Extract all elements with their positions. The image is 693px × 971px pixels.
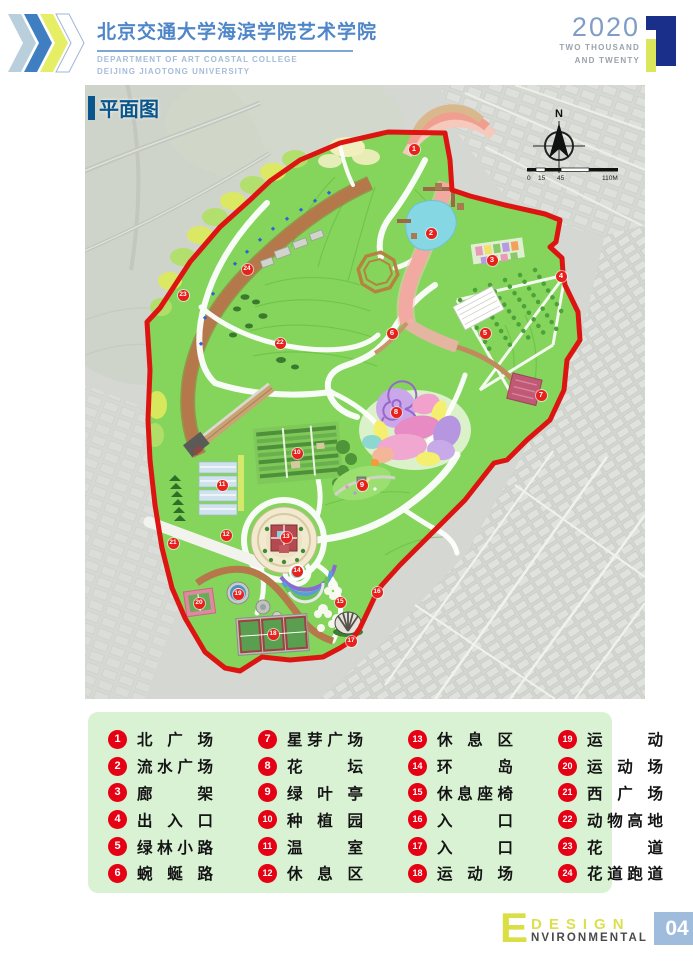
map-marker-22: 22 — [275, 338, 286, 349]
legend-item-17: 17入口 — [408, 833, 558, 860]
legend-item-16: 16入口 — [408, 806, 558, 833]
title-divider — [97, 50, 353, 52]
map-marker-17: 17 — [346, 636, 357, 647]
legend-grid: 1北广场2流水广场3廊架4出入口5绿林小路6蜿蜒路7星芽广场8花坛9绿叶亭10种… — [88, 712, 612, 887]
legend-item-14: 14环岛 — [408, 753, 558, 780]
legend-number-badge: 19 — [558, 730, 577, 749]
map-marker-12: 12 — [221, 530, 232, 541]
scale-tick-15: 15 — [538, 175, 546, 182]
legend-label: 西广场 — [587, 782, 678, 804]
legend-label: 运动 — [587, 728, 693, 750]
legend-label: 花道 — [587, 836, 693, 858]
legend-label: 入口 — [437, 836, 558, 858]
legend-label: 廊架 — [137, 782, 258, 804]
map-marker-15: 15 — [335, 597, 346, 608]
legend-label: 蜿蜒路 — [137, 862, 228, 884]
legend-item-6: 6蜿蜒路 — [108, 860, 258, 887]
legend-item-21: 21西广场 — [558, 780, 693, 807]
legend-number-badge: 1 — [108, 730, 127, 749]
legend-number-badge: 5 — [108, 837, 127, 856]
legend-item-15: 15休息座椅 — [408, 780, 558, 807]
legend-label: 绿叶亭 — [287, 782, 378, 804]
legend-item-24: 24花道跑道 — [558, 860, 693, 887]
scale-tick-0: 0 — [527, 175, 531, 182]
footer: E DESIGN NVIRONMENTAL 04 — [500, 911, 693, 945]
map-marker-11: 11 — [217, 480, 228, 491]
page-title: 北京交通大学海滨学院艺术学院 — [97, 17, 397, 44]
map-marker-21: 21 — [168, 538, 179, 549]
legend-item-12: 12休息区 — [258, 860, 408, 887]
year-block: 2020 TWO THOUSAND AND TWENTY — [520, 14, 640, 66]
legend-number-badge: 8 — [258, 757, 277, 776]
legend-label: 花坛 — [287, 755, 408, 777]
legend-number-badge: 3 — [108, 783, 127, 802]
legend-item-9: 9绿叶亭 — [258, 780, 408, 807]
legend-number-badge: 17 — [408, 837, 427, 856]
legend-label: 流水广场 — [137, 755, 218, 777]
compass-n-label: N — [555, 108, 563, 120]
legend-label: 出入口 — [137, 809, 228, 831]
map-marker-18: 18 — [268, 629, 279, 640]
map-marker-13: 13 — [281, 532, 292, 543]
legend-number-badge: 10 — [258, 810, 277, 829]
year-text: 2020 — [520, 14, 640, 40]
map-marker-9: 9 — [357, 480, 368, 491]
legend-item-10: 10种植园 — [258, 806, 408, 833]
legend-number-badge: 20 — [558, 757, 577, 776]
legend-label: 动物高地 — [587, 809, 668, 831]
legend-number-badge: 14 — [408, 757, 427, 776]
legend-number-badge: 21 — [558, 783, 577, 802]
legend-number-badge: 18 — [408, 864, 427, 883]
legend-label: 星芽广场 — [287, 728, 368, 750]
map-marker-4: 4 — [556, 271, 567, 282]
subtitle-line2: DEIJING JIAOTONG UNIVERSITY — [97, 67, 397, 76]
legend-label: 环岛 — [437, 755, 558, 777]
map-marker-1: 1 — [409, 144, 420, 155]
map-marker-3: 3 — [487, 255, 498, 266]
legend-item-8: 8花坛 — [258, 753, 408, 780]
subtitle-line1: DEPARTMENT OF ART COASTAL COLLEGE — [97, 55, 397, 64]
legend-label: 绿林小路 — [137, 836, 218, 858]
legend-label: 休息区 — [287, 862, 378, 884]
legend-number-badge: 13 — [408, 730, 427, 749]
footer-environmental-text: NVIRONMENTAL — [531, 932, 648, 945]
header-title-block: 北京交通大学海滨学院艺术学院 DEPARTMENT OF ART COASTAL… — [97, 17, 397, 76]
legend-item-7: 7星芽广场 — [258, 726, 408, 753]
map-marker-6: 6 — [387, 328, 398, 339]
legend-number-badge: 22 — [558, 810, 577, 829]
legend-label: 休息座椅 — [437, 782, 518, 804]
map-title: 平面图 — [88, 93, 159, 122]
map-title-text: 平面图 — [99, 93, 159, 122]
map-marker-23: 23 — [178, 290, 189, 301]
site-plan-drawing: N 0 15 45 110M — [85, 85, 645, 699]
footer-e-letter: E — [500, 911, 528, 945]
footer-design-text: DESIGN — [531, 917, 648, 932]
legend-label: 运动场 — [587, 755, 678, 777]
legend-item-20: 20运动场 — [558, 753, 693, 780]
legend-number-badge: 24 — [558, 864, 577, 883]
map-marker-24: 24 — [242, 264, 253, 275]
legend-item-4: 4出入口 — [108, 806, 258, 833]
map-marker-8: 8 — [391, 407, 402, 418]
legend-number-badge: 6 — [108, 864, 127, 883]
legend-number-badge: 4 — [108, 810, 127, 829]
legend-item-19: 19运动 — [558, 726, 693, 753]
legend-number-badge: 12 — [258, 864, 277, 883]
legend-number-badge: 23 — [558, 837, 577, 856]
year-words-line1: TWO THOUSAND — [520, 43, 640, 53]
legend-number-badge: 16 — [408, 810, 427, 829]
scale-tick-110m: 110M — [602, 175, 618, 182]
year-logo-icon — [644, 14, 680, 74]
design-portfolio-page: 北京交通大学海滨学院艺术学院 DEPARTMENT OF ART COASTAL… — [0, 0, 693, 971]
legend-item-5: 5绿林小路 — [108, 833, 258, 860]
legend-item-22: 22动物高地 — [558, 806, 693, 833]
map-marker-2: 2 — [426, 228, 437, 239]
legend-item-2: 2流水广场 — [108, 753, 258, 780]
legend-label: 花道跑道 — [587, 862, 668, 884]
legend-label: 种植园 — [287, 809, 378, 831]
scale-tick-45: 45 — [557, 175, 565, 182]
legend-item-18: 18运动场 — [408, 860, 558, 887]
map-marker-5: 5 — [480, 328, 491, 339]
legend-item-23: 23花道 — [558, 833, 693, 860]
site-plan-map: 平面图 — [85, 85, 645, 699]
legend-number-badge: 7 — [258, 730, 277, 749]
legend-number-badge: 9 — [258, 783, 277, 802]
map-marker-14: 14 — [292, 566, 303, 577]
legend-number-badge: 2 — [108, 757, 127, 776]
legend-item-1: 1北广场 — [108, 726, 258, 753]
page-number-badge: 04 — [654, 912, 693, 945]
map-marker-19: 19 — [233, 589, 244, 600]
map-marker-16: 16 — [372, 587, 383, 598]
map-marker-7: 7 — [536, 390, 547, 401]
legend-item-3: 3廊架 — [108, 780, 258, 807]
legend-label: 休息区 — [437, 728, 528, 750]
map-marker-20: 20 — [194, 598, 205, 609]
legend-item-13: 13休息区 — [408, 726, 558, 753]
footer-wordmark: DESIGN NVIRONMENTAL — [531, 917, 648, 945]
year-words-line2: AND TWENTY — [520, 56, 640, 66]
chevron-logo — [8, 12, 90, 74]
legend-item-11: 11温室 — [258, 833, 408, 860]
legend-label: 运动场 — [437, 862, 528, 884]
map-marker-10: 10 — [292, 448, 303, 459]
map-title-bar-icon — [88, 96, 95, 120]
legend-label: 入口 — [437, 809, 558, 831]
legend-number-badge: 11 — [258, 837, 277, 856]
legend-panel: 1北广场2流水广场3廊架4出入口5绿林小路6蜿蜒路7星芽广场8花坛9绿叶亭10种… — [88, 712, 612, 893]
legend-label: 温室 — [287, 836, 408, 858]
legend-label: 北广场 — [137, 728, 228, 750]
legend-number-badge: 15 — [408, 783, 427, 802]
